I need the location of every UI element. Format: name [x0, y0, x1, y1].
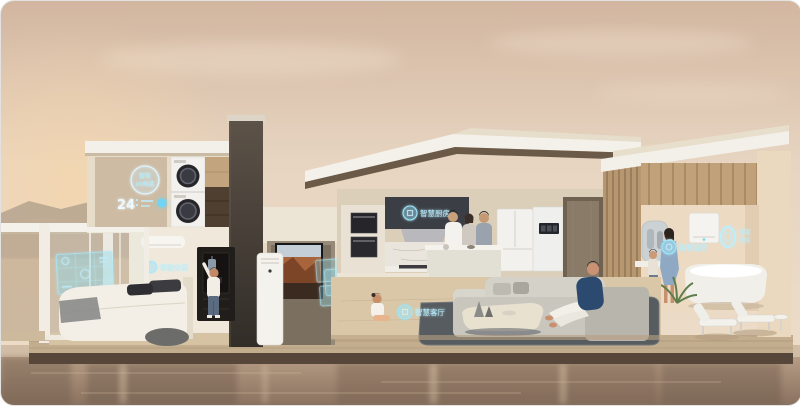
sofa-pillow — [493, 283, 511, 295]
bed-throw — [59, 297, 101, 323]
laundry-room: 智能 UV除菌 24 — [85, 141, 237, 233]
laundry-badge-line2: UV除菌 — [136, 180, 155, 188]
laundry-badge: 智能 UV除菌 — [131, 166, 159, 194]
decor-bowl — [502, 311, 516, 316]
clock-value: 24 — [117, 198, 135, 213]
left-roof — [85, 141, 237, 153]
washer-dryer-stack — [171, 157, 205, 227]
sofa-pillow — [513, 282, 529, 294]
range-hood — [401, 229, 447, 242]
clock-glow-dot — [158, 199, 167, 208]
kitchen-island — [425, 244, 503, 277]
water-reflections — [1, 357, 781, 405]
kitchen-badge: 智慧厨房 — [403, 206, 450, 220]
wall-oven — [351, 213, 377, 233]
bed — [59, 277, 193, 346]
pillow — [127, 283, 154, 295]
man-torso — [575, 276, 604, 312]
living-badge-label: 智慧客厅 — [415, 307, 445, 317]
ac-badge-label: 智能空调 — [160, 263, 188, 272]
pillow — [149, 279, 182, 293]
laundry-badge-line1: 智能 — [139, 172, 151, 180]
bathroom-badge-icon — [662, 240, 676, 254]
house-shadow — [331, 335, 661, 340]
bath-ring-line2: 洗浴 — [739, 236, 751, 244]
kitchen-people — [445, 210, 492, 249]
scene-canvas: 智能 UV除菌 24 — [1, 1, 800, 405]
beanbag — [145, 328, 189, 346]
bath-ring-line1: 恒温 — [739, 228, 751, 236]
living-badge: 智慧客厅 — [398, 305, 445, 319]
air-purifier — [257, 253, 283, 345]
water-heater — [689, 213, 719, 243]
fridge — [497, 209, 533, 271]
ac-badge: 智能空调 — [146, 262, 189, 273]
oven-column — [341, 205, 385, 273]
smart-home-render: 智能 UV除菌 24 — [0, 0, 800, 406]
kitchen-badge-label: 智慧厨房 — [420, 208, 450, 218]
smart-cabinet — [533, 207, 563, 271]
living-badge-icon — [398, 305, 412, 319]
wall-oven — [351, 237, 377, 257]
right-end-wall — [757, 151, 791, 337]
kitchen-badge-icon — [403, 206, 417, 220]
bathroom-badge-label: 智慧浴室 — [679, 243, 707, 252]
